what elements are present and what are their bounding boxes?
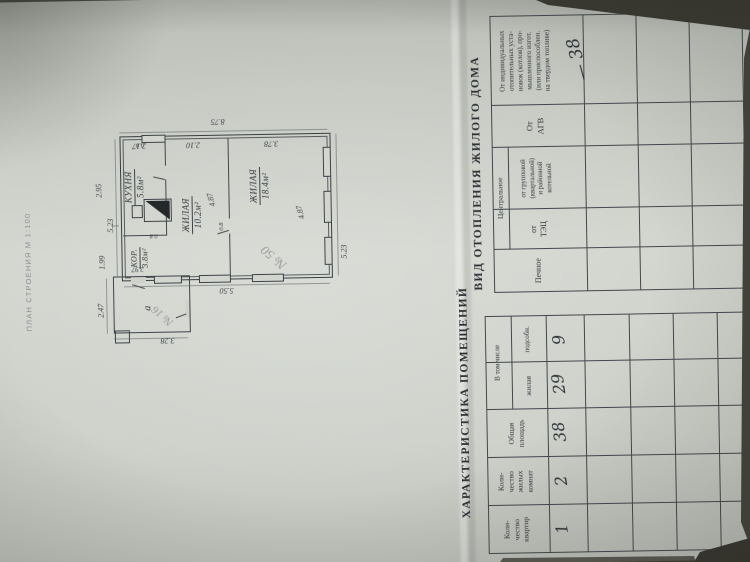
header-cell-individual: От индивидуальных отопительных уста- нов…	[497, 16, 553, 106]
stove-hatch	[146, 201, 170, 220]
value-total-area: 38	[547, 412, 572, 453]
header-cell-auxiliary: подсобн.	[523, 316, 533, 362]
dim-label-bottom-overall: 5.23	[339, 244, 348, 258]
grid-line	[494, 287, 750, 293]
heating-table: Печное Центральное от ТЭЦ от групповой (…	[489, 11, 750, 293]
room-label-living1: ЖИЛАЯ 10.2м²	[180, 183, 204, 247]
header-cell-rooms: Коли- чество жилых комнат	[496, 457, 535, 506]
dim-label-top-left: 1.99	[98, 256, 107, 270]
grid-line	[511, 316, 514, 410]
dim-label-right-room1: 2.10	[186, 141, 200, 150]
room-name: ЖИЛАЯ	[248, 167, 260, 205]
grid-line	[584, 314, 589, 552]
grid-line	[673, 313, 678, 551]
room-label-living2: ЖИЛАЯ 18.4м²	[248, 154, 272, 218]
dim-label-annex-left: 3.28	[160, 336, 174, 345]
rooms-table-title: ХАРАКТЕРИСТИКА ПОМЕЩЕНИЙ	[458, 316, 474, 518]
dim-line	[114, 337, 188, 339]
dim-label-right-room2: 3.78	[264, 139, 278, 148]
porch-step	[115, 330, 130, 343]
grid-line	[688, 12, 694, 289]
value-individual-heating: — 38	[558, 18, 598, 100]
dim-label-top-overall: 5.23	[106, 219, 115, 233]
window	[252, 274, 284, 283]
header-cell-tets: от ТЭЦ	[529, 209, 550, 249]
grid-line	[508, 147, 511, 250]
grid-line	[635, 13, 641, 290]
header-cell-living: жилая	[523, 362, 533, 409]
dim-line	[114, 140, 117, 278]
room-area: 5.8м²	[135, 156, 147, 218]
document-photo: ПЛАН СТРОЕНИЯ М 1:100	[0, 0, 750, 562]
room-area: 18.4м²	[260, 154, 272, 218]
door-gap	[185, 300, 189, 317]
plan-caption: ПЛАН СТРОЕНИЯ М 1:100	[23, 210, 34, 334]
window	[154, 275, 182, 283]
grid-line	[485, 316, 490, 554]
rooms-table: Коли- чество квартир Коли- чество жилых …	[485, 311, 750, 554]
header-cell-including: В том числе	[493, 316, 504, 410]
grid-line	[629, 314, 634, 552]
dim-line	[335, 134, 338, 276]
header-cell-stove: Печное	[533, 249, 544, 292]
dim-label-door-a: 0.8	[150, 232, 158, 239]
dim-label-right-overall: 8.75	[211, 117, 225, 126]
header-cell-total-area: Общая площадь	[506, 409, 526, 457]
room-area: 10.2м²	[192, 183, 204, 247]
header-cell-agv: От АГВ	[524, 105, 546, 147]
grid-line	[717, 312, 722, 550]
grid-line	[741, 12, 747, 289]
room-label-corridor: КОР. 3.8м²	[129, 236, 150, 280]
room-label-kitchen: КУХНЯ 5.8м²	[123, 156, 147, 218]
dim-label-left-overall: 5.50	[220, 286, 234, 295]
value-living: 29	[546, 364, 571, 405]
dim-label-top-right: 2.95	[94, 184, 103, 198]
value-apartments: 1	[550, 513, 573, 544]
window	[324, 237, 332, 265]
heating-table-title: ВИД ОТОПЛЕНИЯ ЖИЛОГО ДОМА	[469, 48, 485, 298]
room-area: 3.8м²	[140, 236, 150, 280]
dim-label-annex-right: 2.97	[132, 265, 144, 273]
value-auxiliary: 9	[547, 325, 570, 354]
stove	[144, 199, 172, 222]
header-cell-central: Центральное	[495, 147, 506, 250]
dim-line	[106, 279, 108, 334]
window	[199, 275, 231, 284]
header-cell-apartments: Коли- чество квартир	[502, 505, 532, 553]
window	[323, 147, 332, 177]
dim-label-annex-top: 2.47	[96, 304, 105, 318]
dim-label-door-c: 0.8	[136, 141, 144, 148]
value-rooms: 2	[549, 465, 572, 496]
document-page: ПЛАН СТРОЕНИЯ М 1:100	[0, 0, 750, 562]
room-name: ЖИЛАЯ	[180, 196, 192, 234]
room-name: КУХНЯ	[123, 169, 135, 205]
dim-label-door-b: 0.8	[218, 222, 225, 230]
window	[323, 191, 332, 223]
header-cell-district: от групповой (квартальной) и районной ко…	[520, 147, 556, 210]
